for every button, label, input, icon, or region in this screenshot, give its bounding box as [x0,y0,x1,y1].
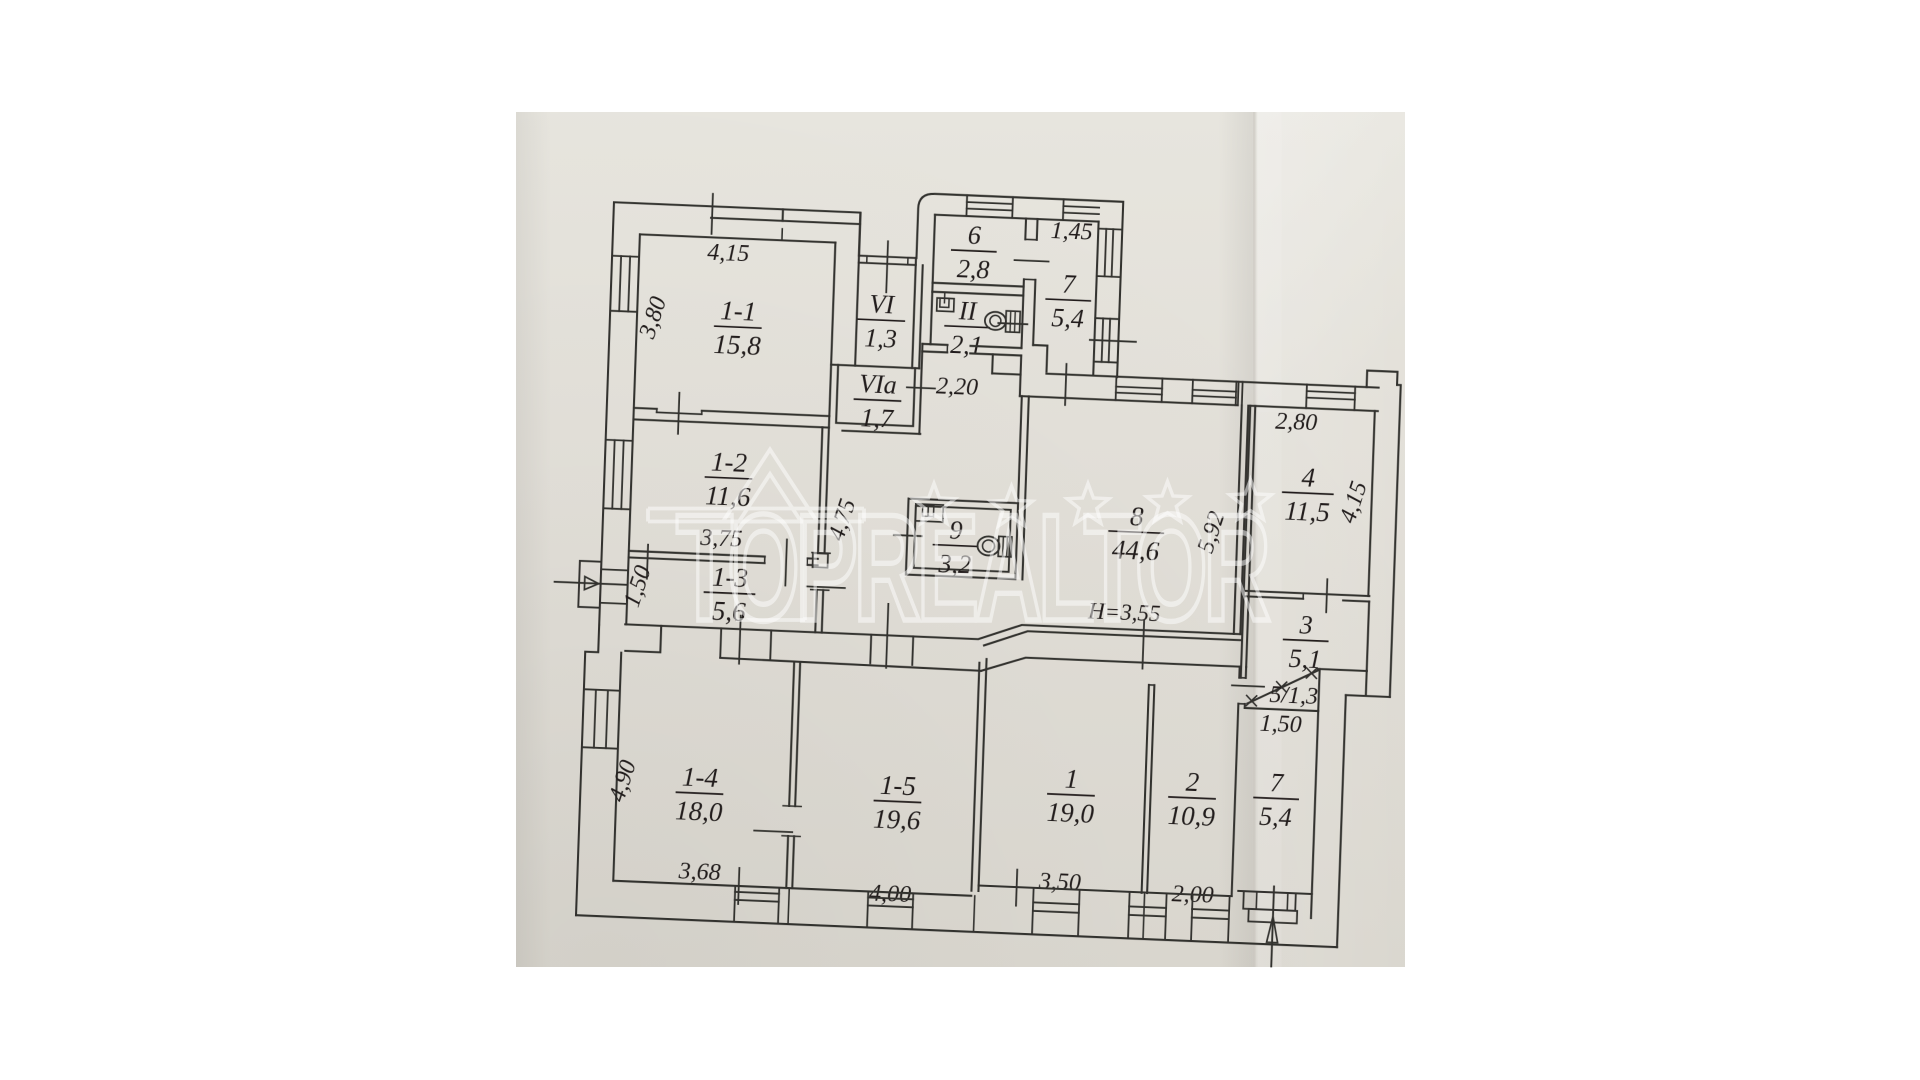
svg-text:1-5: 1-5 [879,770,916,801]
svg-text:TOPREALTOR: TOPREALTOR [676,483,1269,653]
svg-text:1,3: 1,3 [864,323,897,353]
svg-text:5,4: 5,4 [1051,303,1084,333]
svg-text:2,80: 2,80 [1275,409,1318,437]
svg-text:5/1,3: 5/1,3 [1269,682,1319,710]
svg-text:VIa: VIa [859,369,898,400]
svg-text:6: 6 [967,221,981,251]
svg-text:10,9: 10,9 [1167,800,1216,832]
svg-text:2,20: 2,20 [936,374,979,402]
svg-text:19,0: 19,0 [1046,797,1095,829]
svg-text:1,7: 1,7 [860,403,894,433]
svg-text:7: 7 [1062,270,1077,300]
svg-text:15,8: 15,8 [713,329,762,361]
svg-text:1: 1 [1064,764,1079,795]
svg-text:VI: VI [869,290,896,320]
svg-text:7: 7 [1270,768,1285,798]
svg-text:1-2: 1-2 [711,446,748,477]
svg-text:5,4: 5,4 [1259,802,1292,832]
svg-text:1-4: 1-4 [681,761,718,792]
svg-text:4: 4 [1301,462,1316,493]
svg-text:2: 2 [1185,767,1200,798]
svg-text:11,5: 11,5 [1284,495,1330,527]
svg-text:II: II [958,296,979,326]
svg-text:18,0: 18,0 [675,795,724,827]
svg-text:3: 3 [1298,610,1313,640]
svg-text:19,6: 19,6 [873,804,922,836]
svg-text:3,50: 3,50 [1037,869,1081,897]
svg-text:3,68: 3,68 [677,858,721,886]
svg-text:1,50: 1,50 [1259,711,1302,739]
svg-text:4,15: 4,15 [707,240,750,268]
svg-text:1,45: 1,45 [1050,218,1093,246]
svg-text:2,8: 2,8 [956,254,989,284]
svg-text:4,00: 4,00 [869,880,912,908]
svg-text:1-1: 1-1 [720,295,757,326]
